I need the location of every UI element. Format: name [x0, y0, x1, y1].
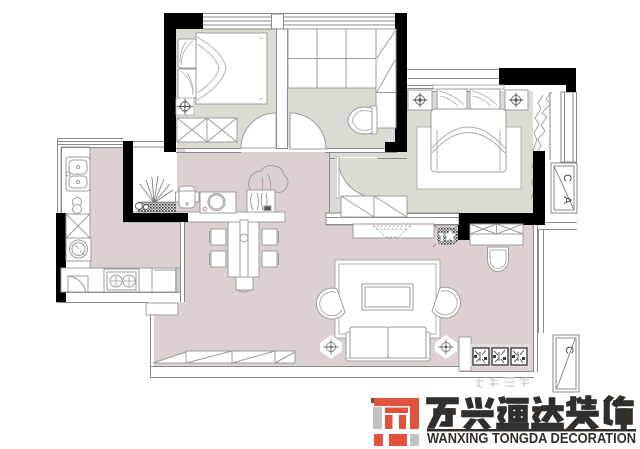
svg-text:C: C	[563, 346, 575, 354]
svg-text:WANXING TONGDA DECORATION: WANXING TONGDA DECORATION	[427, 430, 636, 447]
svg-text:A: A	[561, 196, 573, 204]
svg-text:C: C	[561, 174, 573, 182]
